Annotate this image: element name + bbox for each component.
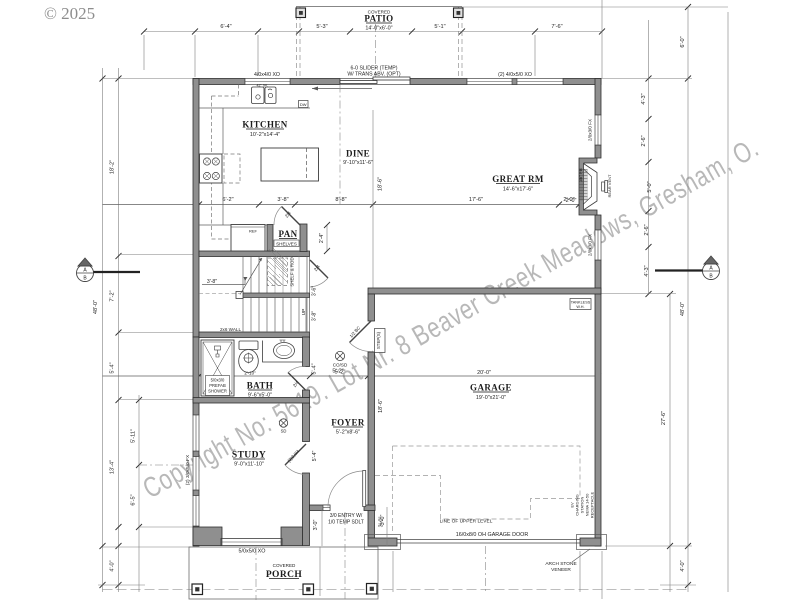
- svg-text:DINE: DINE: [346, 149, 370, 159]
- svg-text:5'-0": 5'-0": [647, 181, 653, 192]
- svg-text:FOYER: FOYER: [331, 418, 365, 428]
- svg-text:3'-0": 3'-0": [380, 515, 386, 526]
- svg-text:RECEPTACLE: RECEPTACLE: [590, 491, 595, 518]
- svg-text:19'-0"x21'-0": 19'-0"x21'-0": [476, 395, 506, 401]
- svg-text:36" FB: 36" FB: [578, 168, 583, 181]
- svg-text:14'-6"x17'-6": 14'-6"x17'-6": [503, 187, 533, 193]
- svg-text:UP: UP: [301, 309, 307, 316]
- svg-text:18'-2": 18'-2": [110, 160, 116, 174]
- svg-text:(2) 4/0x5/0 XO: (2) 4/0x5/0 XO: [498, 72, 532, 78]
- svg-text:18'-6": 18'-6": [378, 399, 384, 413]
- svg-text:42" SK: 42" SK: [256, 84, 268, 88]
- svg-text:2/0x3/0 FX: 2/0x3/0 FX: [588, 234, 593, 256]
- svg-text:LINE OF UPPER LEVEL: LINE OF UPPER LEVEL: [440, 519, 493, 525]
- svg-text:18'-6": 18'-6": [378, 177, 384, 191]
- svg-text:REAR VENT: REAR VENT: [607, 174, 612, 197]
- svg-text:5/0x5/0 XO: 5/0x5/0 XO: [239, 549, 266, 555]
- svg-text:SD: SD: [281, 429, 287, 434]
- svg-text:BATH: BATH: [247, 381, 273, 391]
- svg-text:SHOWER: SHOWER: [208, 389, 227, 394]
- svg-text:2'-6": 2'-6": [644, 224, 650, 235]
- svg-text:14'-0"x6'-0": 14'-0"x6'-0": [365, 26, 392, 32]
- svg-text:2'-6": 2'-6": [641, 135, 647, 146]
- svg-text:TANKLESS: TANKLESS: [571, 301, 591, 305]
- svg-text:2x6 WALL: 2x6 WALL: [220, 327, 241, 332]
- svg-text:SHELVES: SHELVES: [276, 242, 297, 247]
- svg-text:5/0x3/0: 5/0x3/0: [211, 378, 225, 383]
- svg-text:3'-8": 3'-8": [312, 311, 318, 321]
- svg-text:REF: REF: [249, 229, 258, 234]
- svg-text:6'-5": 6'-5": [131, 494, 137, 505]
- svg-text:VENEER: VENEER: [551, 567, 571, 573]
- svg-text:9'-10"x11'-6": 9'-10"x11'-6": [343, 160, 373, 166]
- svg-text:4'-3": 4'-3": [644, 265, 650, 276]
- svg-text:7'-6": 7'-6": [551, 24, 562, 30]
- svg-text:STEP(S): STEP(S): [376, 331, 381, 349]
- svg-text:2'-10": 2'-10": [244, 371, 256, 376]
- svg-text:6'-0": 6'-0": [680, 36, 686, 47]
- svg-text:5'-1": 5'-1": [434, 24, 445, 30]
- svg-text:3/0 ENTRY W/: 3/0 ENTRY W/: [330, 513, 363, 519]
- svg-text:3'-8": 3'-8": [207, 279, 217, 285]
- svg-text:GREAT RM: GREAT RM: [492, 174, 544, 184]
- svg-text:10'-2"x14'-4": 10'-2"x14'-4": [250, 132, 280, 138]
- svg-text:9'-6"x5'-0": 9'-6"x5'-0": [248, 393, 272, 399]
- svg-text:1/0 TEMP SDLT: 1/0 TEMP SDLT: [328, 520, 364, 526]
- svg-text:13'-4": 13'-4": [110, 460, 116, 474]
- svg-text:CO/SD: CO/SD: [333, 363, 348, 368]
- svg-text:W/ TRANS ABV. (OPT): W/ TRANS ABV. (OPT): [347, 72, 401, 78]
- svg-text:SHELF & ROD: SHELF & ROD: [290, 257, 295, 286]
- svg-text:16/0x8/0 OH GARAGE DOOR: 16/0x8/0 OH GARAGE DOOR: [456, 532, 529, 538]
- svg-text:27'-6": 27'-6": [661, 411, 667, 425]
- svg-text:5'-4": 5'-4": [110, 362, 116, 373]
- svg-text:2'-4": 2'-4": [319, 233, 325, 243]
- svg-text:4/0x4/0 XO: 4/0x4/0 XO: [254, 72, 280, 78]
- svg-text:2/0x3/0 FX: 2/0x3/0 FX: [588, 119, 593, 141]
- svg-text:20'-0": 20'-0": [477, 370, 491, 376]
- svg-text:7'-2": 7'-2": [110, 290, 116, 301]
- svg-text:6'-2": 6'-2": [222, 197, 233, 203]
- svg-text:PREFAB: PREFAB: [209, 383, 226, 388]
- svg-text:3'-8": 3'-8": [277, 197, 288, 203]
- svg-text:5'-4": 5'-4": [312, 451, 318, 462]
- svg-text:17'-6": 17'-6": [469, 197, 483, 203]
- svg-text:5'-11": 5'-11": [131, 429, 137, 443]
- svg-text:© 2025: © 2025: [44, 4, 95, 23]
- svg-text:3'-0": 3'-0": [313, 520, 319, 531]
- svg-text:8'-8": 8'-8": [335, 197, 346, 203]
- svg-text:3'-6": 3'-6": [312, 286, 318, 296]
- svg-text:48'-0": 48'-0": [93, 300, 99, 314]
- svg-text:4'-0": 4'-0": [110, 560, 116, 571]
- svg-text:W.H.: W.H.: [576, 305, 584, 309]
- svg-text:2'-0": 2'-0": [566, 198, 577, 204]
- svg-text:5'-2": 5'-2": [335, 370, 346, 376]
- svg-text:5'-3": 5'-3": [316, 24, 327, 30]
- svg-text:KITCHEN: KITCHEN: [242, 120, 287, 130]
- svg-text:4'-0": 4'-0": [680, 560, 686, 571]
- svg-text:PATIO: PATIO: [364, 14, 393, 24]
- svg-text:4'-3": 4'-3": [641, 93, 647, 104]
- svg-text:(2) 3/0x5/0 FX: (2) 3/0x5/0 FX: [185, 454, 191, 485]
- svg-text:5'-4": 5'-4": [312, 363, 318, 374]
- svg-text:PAN: PAN: [278, 229, 297, 239]
- svg-text:COVERED: COVERED: [273, 563, 296, 568]
- svg-text:GARAGE: GARAGE: [470, 383, 512, 393]
- svg-text:5'-2"x8'-6": 5'-2"x8'-6": [336, 430, 360, 436]
- svg-text:6'-4": 6'-4": [220, 24, 231, 30]
- svg-text:48'-0": 48'-0": [680, 302, 686, 316]
- svg-text:9'-0"x11'-10": 9'-0"x11'-10": [234, 462, 264, 468]
- svg-text:DW: DW: [300, 102, 307, 107]
